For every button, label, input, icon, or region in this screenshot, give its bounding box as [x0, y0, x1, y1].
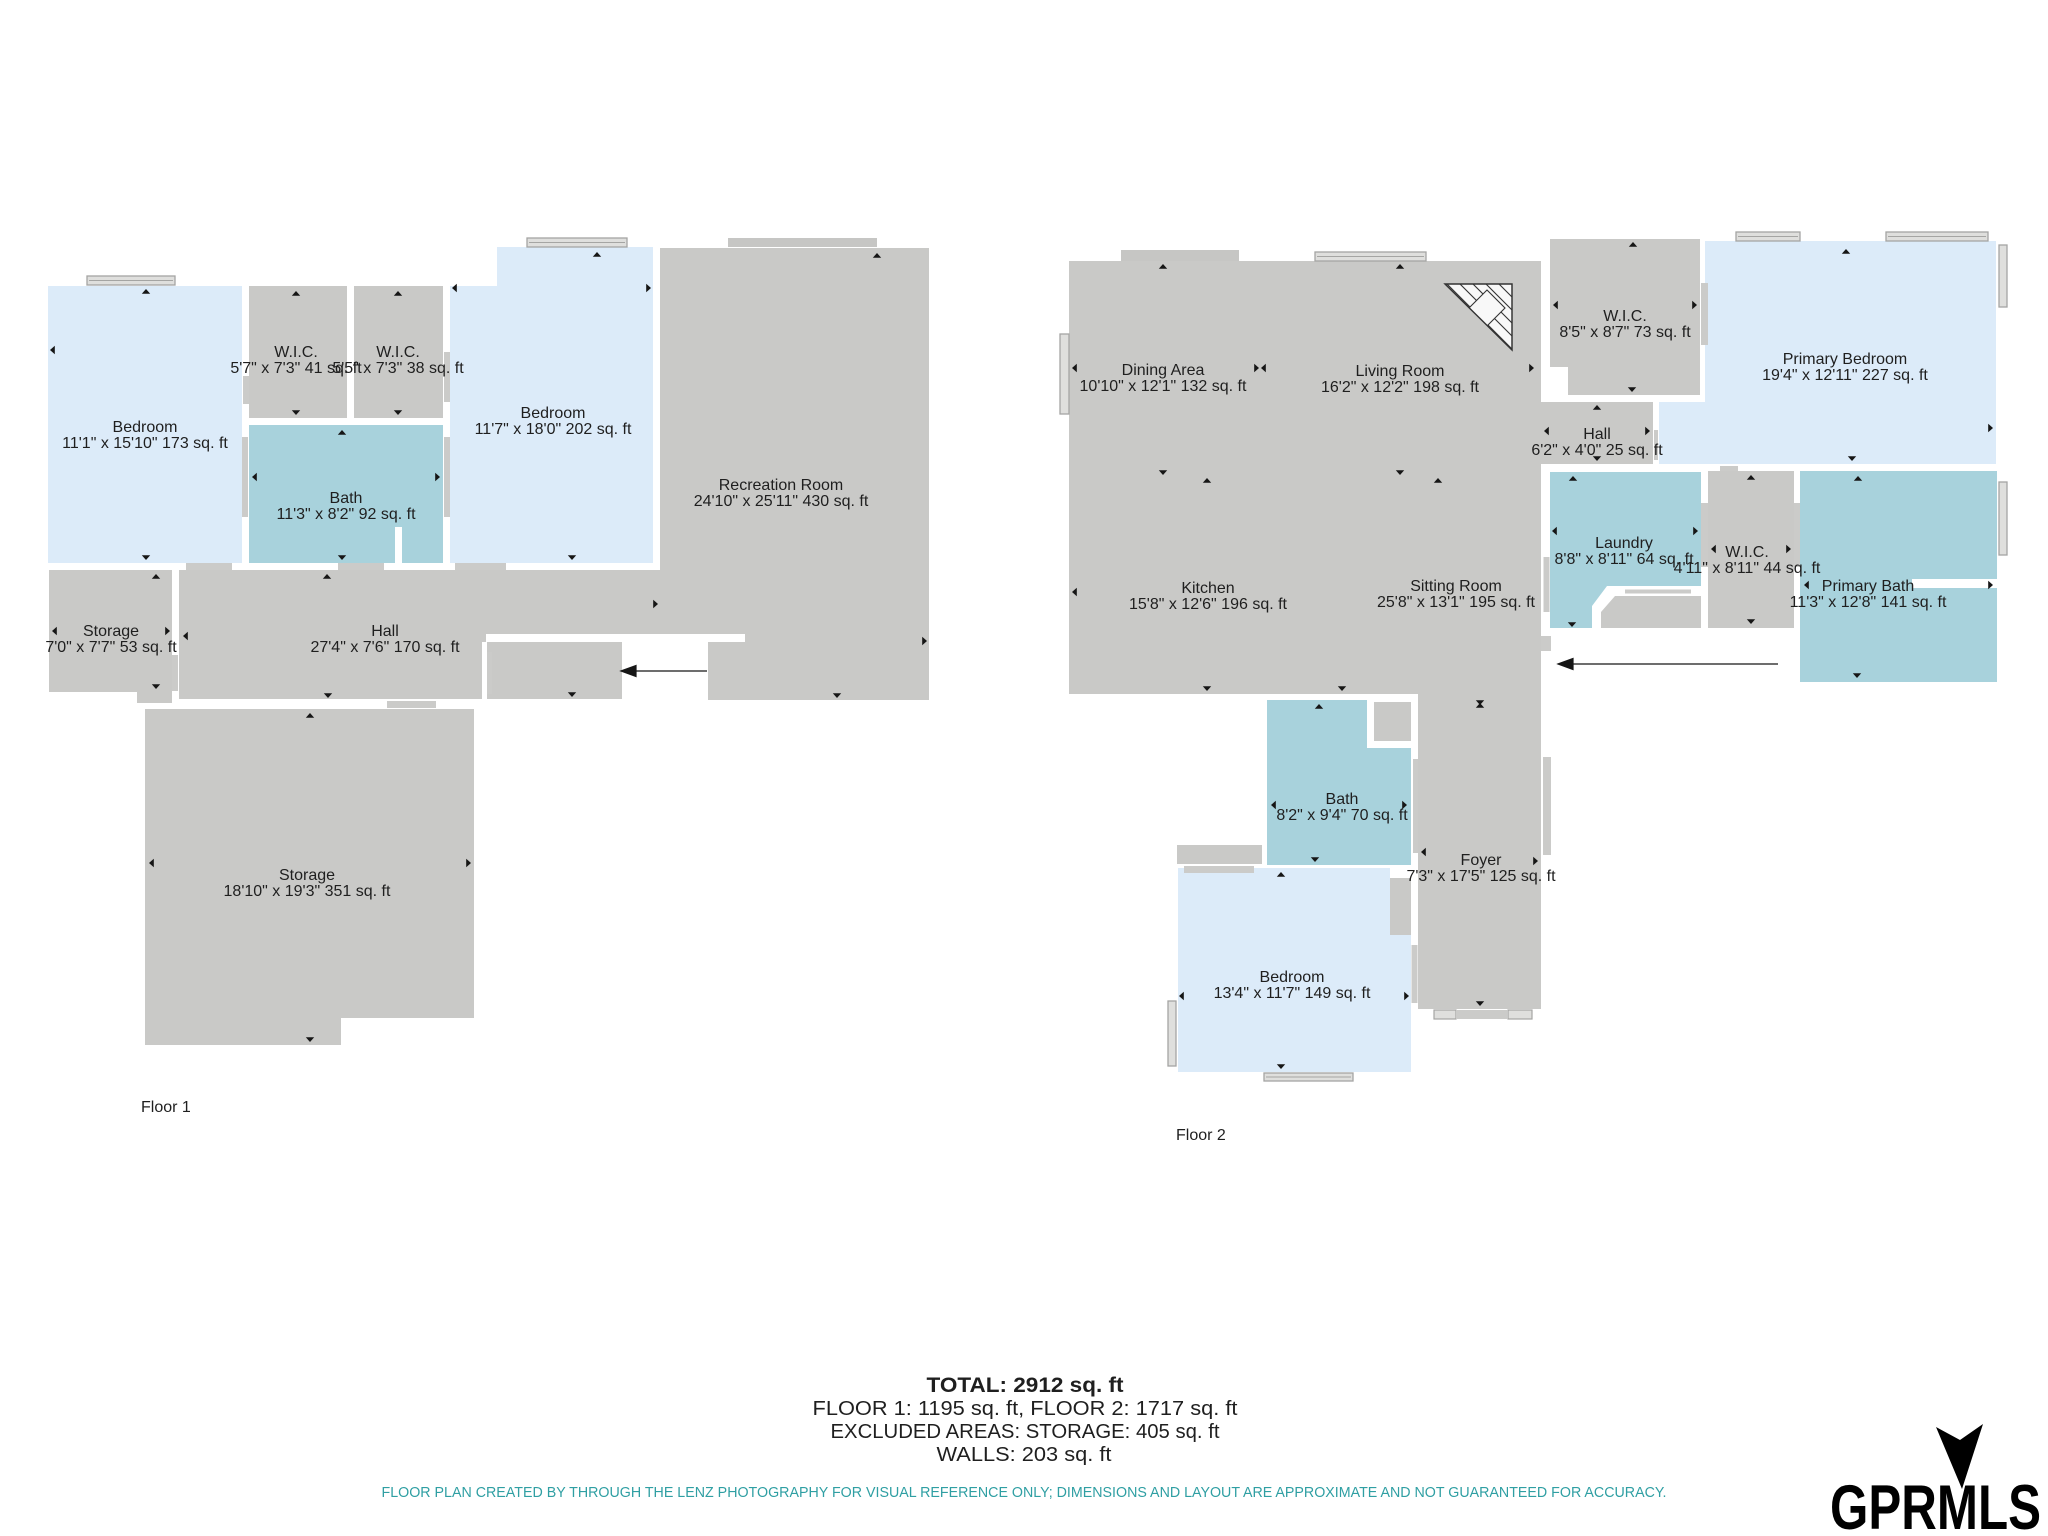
- svg-text:8'2" x 9'4" 70 sq. ft: 8'2" x 9'4" 70 sq. ft: [1276, 807, 1408, 824]
- svg-text:WALLS: 203 sq. ft: WALLS: 203 sq. ft: [937, 1444, 1112, 1466]
- svg-text:W.I.C.: W.I.C.: [1603, 308, 1647, 325]
- svg-text:7'3" x 17'5" 125 sq. ft: 7'3" x 17'5" 125 sq. ft: [1406, 868, 1556, 885]
- svg-text:GPRMLS: GPRMLS: [1830, 1473, 2041, 1536]
- svg-text:Bath: Bath: [330, 490, 363, 507]
- svg-text:15'8" x 12'6" 196 sq. ft: 15'8" x 12'6" 196 sq. ft: [1129, 596, 1288, 613]
- svg-text:27'4" x 7'6" 170 sq. ft: 27'4" x 7'6" 170 sq. ft: [310, 639, 460, 656]
- svg-text:Foyer: Foyer: [1461, 852, 1503, 869]
- svg-text:Bath: Bath: [1326, 791, 1359, 808]
- svg-text:Laundry: Laundry: [1595, 535, 1653, 552]
- svg-text:Bedroom: Bedroom: [521, 405, 586, 422]
- svg-text:Hall: Hall: [1583, 426, 1611, 443]
- svg-text:Floor 1: Floor 1: [141, 1099, 191, 1116]
- svg-text:Primary Bedroom: Primary Bedroom: [1783, 351, 1907, 368]
- svg-text:6'2" x 4'0" 25 sq. ft: 6'2" x 4'0" 25 sq. ft: [1531, 442, 1663, 459]
- svg-text:FLOOR PLAN CREATED BY THROUGH: FLOOR PLAN CREATED BY THROUGH THE LENZ P…: [382, 1485, 1667, 1501]
- svg-text:EXCLUDED AREAS: STORAGE: 405 s: EXCLUDED AREAS: STORAGE: 405 sq. ft: [831, 1421, 1220, 1443]
- svg-text:Sitting Room: Sitting Room: [1410, 578, 1502, 595]
- svg-text:Storage: Storage: [279, 867, 335, 884]
- svg-text:W.I.C.: W.I.C.: [274, 344, 318, 361]
- svg-text:7'0" x 7'7" 53 sq. ft: 7'0" x 7'7" 53 sq. ft: [45, 639, 177, 656]
- svg-text:5'5" x 7'3" 38 sq. ft: 5'5" x 7'3" 38 sq. ft: [332, 360, 464, 377]
- svg-text:10'10" x 12'1" 132 sq. ft: 10'10" x 12'1" 132 sq. ft: [1080, 378, 1247, 395]
- svg-text:TOTAL: 2912 sq. ft: TOTAL: 2912 sq. ft: [927, 1374, 1124, 1397]
- svg-text:25'8" x 13'1" 195 sq. ft: 25'8" x 13'1" 195 sq. ft: [1377, 594, 1536, 611]
- svg-text:Bedroom: Bedroom: [1260, 969, 1325, 986]
- svg-text:Floor 2: Floor 2: [1176, 1127, 1226, 1144]
- svg-text:11'1" x 15'10" 173 sq. ft: 11'1" x 15'10" 173 sq. ft: [62, 435, 228, 452]
- svg-text:16'2" x 12'2" 198 sq. ft: 16'2" x 12'2" 198 sq. ft: [1321, 379, 1480, 396]
- svg-text:Storage: Storage: [83, 623, 139, 640]
- svg-text:Bedroom: Bedroom: [113, 419, 178, 436]
- svg-text:4'11" x 8'11" 44 sq. ft: 4'11" x 8'11" 44 sq. ft: [1674, 560, 1821, 577]
- svg-text:8'5" x 8'7" 73 sq. ft: 8'5" x 8'7" 73 sq. ft: [1559, 324, 1691, 341]
- svg-text:11'7" x 18'0" 202 sq. ft: 11'7" x 18'0" 202 sq. ft: [475, 421, 632, 438]
- svg-text:13'4" x 11'7" 149 sq. ft: 13'4" x 11'7" 149 sq. ft: [1214, 985, 1371, 1002]
- svg-text:Kitchen: Kitchen: [1181, 580, 1234, 597]
- svg-text:11'3" x 12'8" 141 sq. ft: 11'3" x 12'8" 141 sq. ft: [1790, 594, 1947, 611]
- svg-text:FLOOR 1: 1195 sq. ft, FLOOR 2:: FLOOR 1: 1195 sq. ft, FLOOR 2: 1717 sq. …: [813, 1398, 1238, 1420]
- svg-text:24'10" x 25'11" 430 sq. ft: 24'10" x 25'11" 430 sq. ft: [694, 493, 869, 510]
- svg-text:Hall: Hall: [371, 623, 399, 640]
- svg-text:18'10" x 19'3" 351 sq. ft: 18'10" x 19'3" 351 sq. ft: [224, 883, 391, 900]
- svg-text:Recreation Room: Recreation Room: [719, 477, 844, 494]
- svg-text:Living Room: Living Room: [1356, 363, 1445, 380]
- svg-text:19'4" x 12'11" 227 sq. ft: 19'4" x 12'11" 227 sq. ft: [1762, 367, 1928, 384]
- svg-text:W.I.C.: W.I.C.: [1725, 544, 1769, 561]
- svg-text:11'3" x 8'2" 92 sq. ft: 11'3" x 8'2" 92 sq. ft: [276, 506, 416, 523]
- svg-text:Dining Area: Dining Area: [1122, 362, 1205, 379]
- svg-text:Primary Bath: Primary Bath: [1822, 578, 1914, 595]
- svg-text:W.I.C.: W.I.C.: [376, 344, 420, 361]
